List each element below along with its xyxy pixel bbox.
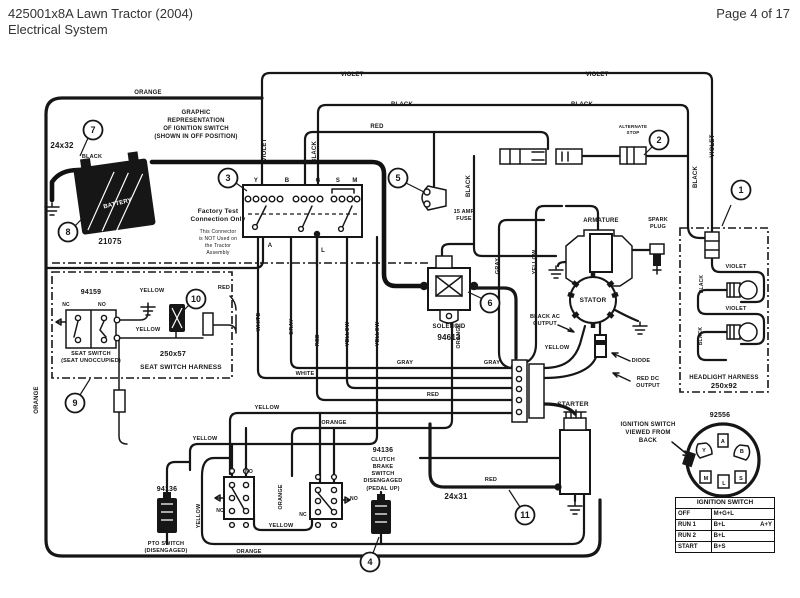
wire-violet-vert: VIOLET bbox=[262, 138, 268, 161]
terminal-g: G bbox=[316, 178, 321, 184]
wire-black-top-right: BLACK bbox=[571, 102, 593, 108]
spark-plug bbox=[650, 244, 664, 274]
clutch-switch-label-1: CLUTCH bbox=[371, 457, 395, 463]
clutch-switch-label-3: SWITCH bbox=[372, 471, 395, 477]
clutch-switch-number: 94136 bbox=[373, 447, 393, 454]
ignition-switch-back-view bbox=[682, 424, 759, 496]
wire-violet-bulb-2: VIOLET bbox=[725, 306, 747, 312]
fuse-label-1: 15 AMP bbox=[454, 209, 475, 215]
black-ac-output-1: BLACK AC bbox=[530, 314, 560, 320]
seat-switch-nc: NC bbox=[62, 302, 70, 308]
stator-label: STATOR bbox=[580, 297, 607, 304]
svg-text:11: 11 bbox=[520, 510, 530, 520]
ignition-switch-graphic bbox=[243, 185, 362, 237]
terminal-y: Y bbox=[254, 178, 258, 184]
switch-circuits: B+S bbox=[711, 542, 774, 553]
red-dc-output-2: OUTPUT bbox=[636, 383, 660, 389]
back-terminal-a: A bbox=[721, 439, 725, 445]
wire-yellow-bottom-1: YELLOW bbox=[193, 436, 218, 442]
terminal-l: L bbox=[321, 248, 325, 254]
switch-position: OFF bbox=[676, 509, 712, 520]
back-terminal-s: S bbox=[739, 476, 743, 482]
switch-position: RUN 1 bbox=[676, 520, 712, 531]
factory-note-3: the Tractor bbox=[205, 243, 231, 249]
graphic-rep-3: OF IGNITION SWITCH bbox=[163, 126, 229, 132]
wire-yellow-vert-1: YELLOW bbox=[345, 321, 351, 346]
wire-orange-left: ORANGE bbox=[34, 386, 40, 414]
solenoid-number: 94613 bbox=[437, 333, 461, 342]
headlight-harness-number: 250x92 bbox=[711, 381, 737, 390]
wire-violet-bulb-1: VIOLET bbox=[725, 264, 747, 270]
wire-yellow-seat-1: YELLOW bbox=[140, 288, 165, 294]
wire-orange-bottom-2: ORANGE bbox=[236, 549, 261, 555]
wire-gray-vert: GRAY bbox=[289, 319, 295, 335]
inline-connector bbox=[500, 147, 646, 164]
wire-red-starter: RED bbox=[485, 477, 497, 483]
svg-text:4: 4 bbox=[367, 557, 372, 567]
wire-gray-row-1: GRAY bbox=[397, 360, 413, 366]
switch-circuits: B+L bbox=[711, 531, 774, 542]
pto-switch-number: 94136 bbox=[157, 486, 177, 493]
pto-switch-label-1: PTO SWITCH bbox=[148, 541, 184, 547]
seat-relay-module bbox=[169, 304, 185, 332]
diode-label: DIODE bbox=[632, 358, 651, 364]
wire-gray-row-2: GRAY bbox=[484, 360, 500, 366]
box2-no: NO bbox=[350, 496, 358, 502]
callout-7: 7 bbox=[80, 121, 103, 157]
seat-switch-label-1: SEAT SWITCH bbox=[71, 351, 111, 357]
interlock-switch-1 bbox=[215, 469, 254, 528]
svg-text:9: 9 bbox=[72, 398, 77, 408]
wire-yellow-vert-sol: YELLOW bbox=[532, 249, 538, 274]
box1-no: NO bbox=[245, 469, 253, 475]
callout-5: 5 bbox=[389, 169, 425, 193]
engine-harness-connector bbox=[512, 360, 544, 422]
doc-subtitle: Electrical System bbox=[8, 22, 193, 38]
fuse bbox=[422, 186, 446, 210]
stator-ground-icon bbox=[633, 322, 647, 334]
back-connector-number: 92556 bbox=[710, 412, 730, 419]
wire-black-top-left: BLACK bbox=[391, 102, 413, 108]
wire-black-vert-head: BLACK bbox=[693, 166, 699, 188]
wire-red-seat: RED bbox=[218, 285, 230, 291]
callout-6: 6 bbox=[468, 292, 500, 313]
callout-10: 10 bbox=[184, 290, 206, 311]
alternate-stop-2: STOP bbox=[627, 130, 640, 135]
graphic-rep-1: GRAPHIC bbox=[181, 110, 211, 116]
wire-red-vert: RED bbox=[315, 334, 321, 346]
cable-24x31: 24x31 bbox=[444, 492, 468, 501]
seat-harness-plug bbox=[114, 390, 125, 412]
callout-2: 2 bbox=[644, 131, 669, 156]
box1-nc: NC bbox=[216, 508, 224, 514]
wire-red-top: RED bbox=[370, 124, 384, 130]
wire-yellow-stator: YELLOW bbox=[545, 345, 570, 351]
battery bbox=[72, 150, 156, 236]
headlight-bulb-2 bbox=[727, 323, 757, 341]
pto-switch-label-2: (DISENGAGED) bbox=[144, 548, 187, 554]
terminal-m: M bbox=[352, 178, 357, 184]
doc-title: 425001x8A Lawn Tractor (2004) bbox=[8, 6, 193, 22]
wire-yellow-bottom-3: YELLOW bbox=[269, 523, 294, 529]
wire-black-bulb-2: BLACK bbox=[698, 327, 704, 346]
schematic-page: 425001x8A Lawn Tractor (2004) Electrical… bbox=[0, 0, 800, 598]
wire-yellow-pto: YELLOW bbox=[196, 503, 202, 528]
callout-1: 1 bbox=[722, 181, 751, 227]
wire-white-vert: WHITE bbox=[256, 313, 262, 332]
factory-test-2: Connection Only bbox=[191, 216, 246, 223]
wire-violet-top-left: VIOLET bbox=[341, 72, 364, 78]
clutch-switch-label-5: (PEDAL UP) bbox=[366, 486, 399, 492]
wire-yellow-bottom-2: YELLOW bbox=[255, 405, 280, 411]
clutch-switch-label-2: BRAKE bbox=[373, 464, 394, 470]
seat-switch-label-2: (SEAT UNOCCUPIED) bbox=[61, 358, 121, 364]
wire-violet-vert-head: VIOLET bbox=[710, 134, 716, 157]
switch-circuits: M+G+L bbox=[711, 509, 774, 520]
wire-orange-bottom-1: ORANGE bbox=[321, 420, 346, 426]
armature-ground-icon bbox=[549, 266, 563, 278]
black-ac-output-2: OUTPUT bbox=[533, 321, 557, 327]
wire-yellow-vert-2: YELLOW bbox=[375, 321, 381, 346]
wire-violet-top-right: VIOLET bbox=[586, 72, 609, 78]
terminal-b: B bbox=[285, 178, 290, 184]
battery-number: 21075 bbox=[98, 237, 122, 246]
wire-gray-vert-sol: GRAY bbox=[495, 258, 501, 274]
terminal-s: S bbox=[336, 178, 340, 184]
switch-position: START bbox=[676, 542, 712, 553]
box2-nc: NC bbox=[299, 512, 307, 518]
svg-text:8: 8 bbox=[65, 227, 70, 237]
terminal-a: A bbox=[268, 243, 273, 249]
cable-24x32: 24x32 bbox=[50, 141, 74, 150]
ignition-switch-table: IGNITION SWITCH OFFM+G+LRUN 1B+LA+YRUN 2… bbox=[675, 497, 775, 553]
seat-harness-connector bbox=[203, 313, 213, 335]
svg-text:2: 2 bbox=[656, 135, 661, 145]
starter-label: STARTER bbox=[557, 401, 589, 408]
ignition-table-row: RUN 2B+L bbox=[676, 531, 775, 542]
factory-test-1: Factory Test bbox=[198, 208, 239, 215]
callout-3: 3 bbox=[219, 169, 248, 192]
svg-text:10: 10 bbox=[191, 294, 201, 304]
wire-black-bulb-1: BLACK bbox=[699, 275, 705, 294]
starter-ground-icon bbox=[568, 502, 582, 514]
back-terminal-m: M bbox=[704, 476, 709, 482]
callout-4: 4 bbox=[361, 537, 380, 572]
wire-black-battery: BLACK bbox=[82, 154, 102, 160]
ignition-table-row: STARTB+S bbox=[676, 542, 775, 553]
headlight-harness-boundary bbox=[680, 228, 768, 392]
seat-harness-number: 250x57 bbox=[160, 349, 186, 358]
clutch-brake-switch bbox=[371, 494, 391, 534]
wire-yellow-seat-2: YELLOW bbox=[136, 327, 161, 333]
solenoid-label: SOLENOID bbox=[433, 324, 466, 330]
page-indicator: Page 4 of 17 bbox=[716, 6, 790, 21]
factory-note-2: is NOT Used on bbox=[199, 236, 237, 242]
back-terminal-y: Y bbox=[702, 448, 706, 454]
seat-harness-label: SEAT SWITCH HARNESS bbox=[140, 364, 222, 371]
svg-text:1: 1 bbox=[738, 185, 743, 195]
pto-switch bbox=[157, 492, 177, 533]
seat-switch-no: NO bbox=[98, 302, 106, 308]
clutch-switch-label-4: DISENGAGED bbox=[364, 478, 403, 484]
headlight-harness bbox=[705, 232, 757, 341]
svg-text:7: 7 bbox=[90, 125, 95, 135]
fuse-label-2: FUSE bbox=[456, 216, 472, 222]
callout-9: 9 bbox=[66, 379, 91, 413]
ignition-table-row: OFFM+G+L bbox=[676, 509, 775, 520]
armature-label: ARMATURE bbox=[583, 218, 619, 224]
factory-note-1: This Connector bbox=[200, 229, 237, 235]
red-dc-output-1: RED DC bbox=[637, 376, 659, 382]
headlight-bulb-1 bbox=[727, 281, 757, 299]
svg-text:6: 6 bbox=[487, 298, 492, 308]
interlock-switch-2 bbox=[310, 475, 350, 528]
graphic-rep-2: REPRESENTATION bbox=[167, 118, 224, 124]
svg-text:5: 5 bbox=[395, 173, 400, 183]
svg-text:3: 3 bbox=[225, 173, 230, 183]
page-header: 425001x8A Lawn Tractor (2004) Electrical… bbox=[8, 6, 193, 38]
diode bbox=[595, 335, 606, 357]
starter-solenoid bbox=[420, 256, 478, 323]
viewed-from-back-1: IGNITION SWITCH bbox=[621, 422, 676, 428]
starter-motor bbox=[554, 410, 590, 494]
spark-plug-label-1: SPARK bbox=[648, 217, 668, 223]
alternate-stop-connector bbox=[620, 147, 646, 164]
wire-black-vert-fuse: BLACK bbox=[466, 175, 472, 197]
back-terminal-l: L bbox=[722, 481, 726, 487]
switch-circuits: B+LA+Y bbox=[711, 520, 774, 531]
callout-11: 11 bbox=[509, 490, 535, 525]
alternate-stop-1: ALTERNATE bbox=[619, 124, 647, 129]
wire-black-vert-switch: BLACK bbox=[312, 141, 318, 163]
viewed-from-back-2: VIEWED FROM bbox=[625, 430, 670, 436]
wire-orange-boxes: ORANGE bbox=[278, 484, 284, 509]
back-terminal-b: B bbox=[740, 449, 744, 455]
graphic-rep-4: (SHOWN IN OFF POSITION) bbox=[154, 134, 237, 140]
seat-switch-number: 94159 bbox=[81, 289, 101, 296]
viewed-from-back-3: BACK bbox=[639, 438, 658, 444]
wire-orange-top: ORANGE bbox=[134, 90, 162, 96]
wire-white-row: WHITE bbox=[296, 371, 315, 377]
ignition-table-row: RUN 1B+LA+Y bbox=[676, 520, 775, 531]
wire-red-row: RED bbox=[427, 392, 439, 398]
switch-position: RUN 2 bbox=[676, 531, 712, 542]
factory-note-4: Assembly bbox=[206, 250, 230, 256]
seat-switch bbox=[66, 310, 120, 348]
spark-plug-label-2: PLUG bbox=[650, 224, 666, 230]
ignition-table-title: IGNITION SWITCH bbox=[676, 498, 775, 509]
